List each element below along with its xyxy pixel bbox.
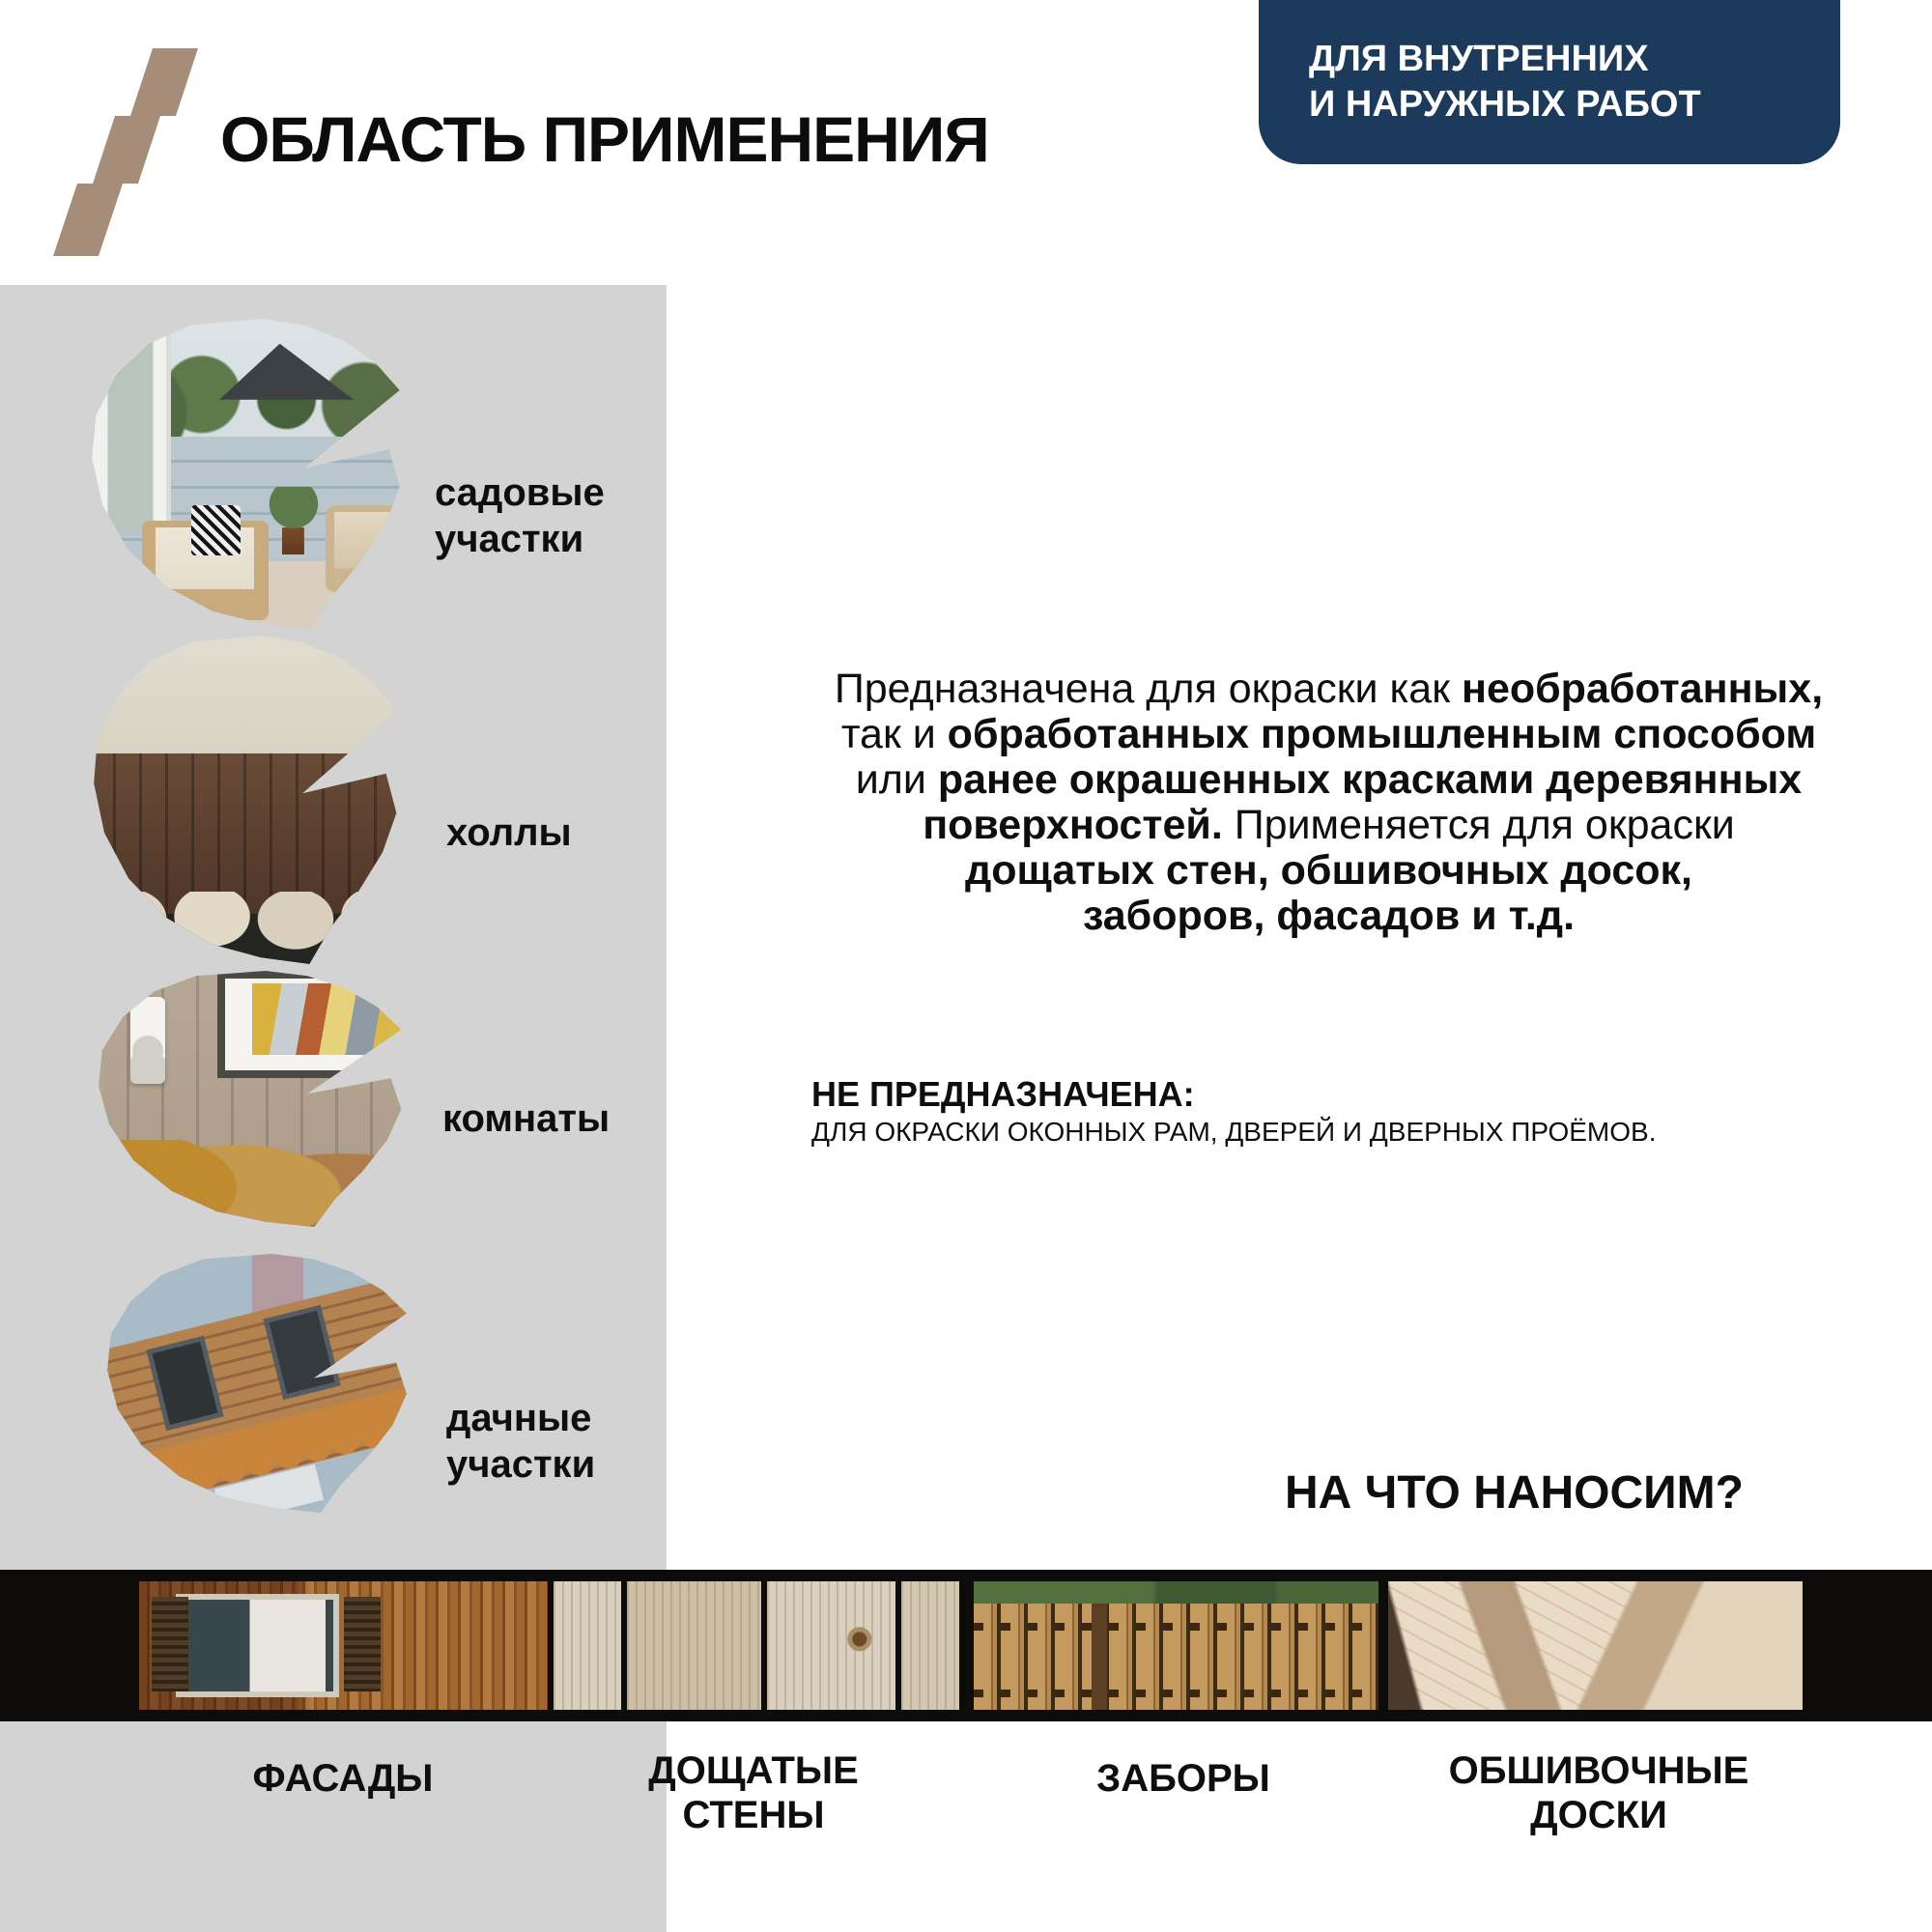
- lightning-bolt-icon: [14, 0, 208, 261]
- photo-layer: [176, 1594, 339, 1696]
- not-intended-title: НЕ ПРЕДНАЗНАЧЕНА:: [811, 1074, 1195, 1115]
- label-line: СТЕНЫ: [551, 1793, 956, 1837]
- photo-layer: [767, 1581, 895, 1710]
- application-label: холлы: [446, 810, 572, 856]
- surfaces-photo-strip: [0, 1570, 1932, 1721]
- intro-paragraph: Предназначена для окраски как необработа…: [800, 667, 1858, 939]
- photo-layer: [269, 487, 318, 555]
- badge-line: И НАРУЖНЫХ РАБОТ: [1309, 82, 1840, 128]
- surface-label: ФАСАДЫ: [140, 1756, 546, 1801]
- surface-label: ЗАБОРЫ: [980, 1756, 1386, 1801]
- label-line: ФАСАДЫ: [140, 1756, 546, 1801]
- label-line: ЗАБОРЫ: [980, 1756, 1386, 1801]
- application-label: дачные участки: [446, 1395, 595, 1488]
- facade-wood-wall-photo: [139, 1581, 548, 1710]
- surface-label: ДОЩАТЫЕ СТЕНЫ: [551, 1748, 956, 1837]
- page-title: ОБЛАСТЬ ПРИМЕНЕНИЯ: [220, 102, 989, 176]
- photo-layer: [152, 1597, 188, 1691]
- label-line: комнаты: [442, 1095, 610, 1142]
- plank-boards-photo: [554, 1581, 959, 1710]
- intro-line: заборов, фасадов и т.д.: [800, 894, 1858, 939]
- photo-layer: [627, 1581, 761, 1710]
- usage-badge: ДЛЯ ВНУТРЕННИХ И НАРУЖНЫХ РАБОТ: [1259, 0, 1840, 164]
- photo-layer: [974, 1690, 1378, 1697]
- surface-label: ОБШИВОЧНЫЕ ДОСКИ: [1396, 1748, 1802, 1837]
- intro-line: или ранее окрашенных красками деревянных: [800, 757, 1858, 803]
- wooden-fence-photo: [974, 1581, 1378, 1710]
- badge-line: ДЛЯ ВНУТРЕННИХ: [1309, 37, 1840, 82]
- label-line: садовые: [435, 469, 605, 516]
- intro-line: дощатых стен, обшивочных досок,: [800, 848, 1858, 894]
- not-intended-text: ДЛЯ ОКРАСКИ ОКОННЫХ РАМ, ДВЕРЕЙ И ДВЕРНЫ…: [811, 1117, 1656, 1148]
- photo-layer: [974, 1581, 1378, 1604]
- label-line: ДОЩАТЫЕ: [551, 1748, 956, 1793]
- intro-line: поверхностей. Применяется для окраски: [800, 803, 1858, 848]
- photo-layer: [344, 1597, 381, 1691]
- photo-layer: [191, 505, 241, 555]
- surfaces-heading: НА ЧТО НАНОСИМ?: [1285, 1466, 1744, 1520]
- label-line: ДОСКИ: [1396, 1793, 1802, 1837]
- photo-layer: [554, 1581, 621, 1710]
- application-label: садовые участки: [435, 469, 605, 562]
- label-line: дачные: [446, 1395, 595, 1441]
- label-line: ОБШИВОЧНЫЕ: [1396, 1748, 1802, 1793]
- photo-layer: [130, 997, 165, 1084]
- intro-line: так и обработанных промышленным способом: [800, 712, 1858, 757]
- photo-layer: [901, 1581, 959, 1710]
- cladding-boards-photo: [1388, 1581, 1803, 1710]
- label-line: участки: [446, 1441, 595, 1488]
- label-line: холлы: [446, 810, 572, 856]
- intro-line: Предназначена для окраски как необработа…: [800, 667, 1858, 712]
- label-line: участки: [435, 516, 605, 562]
- infographic-page: ОБЛАСТЬ ПРИМЕНЕНИЯ ДЛЯ ВНУТРЕННИХ И НАРУ…: [0, 0, 1932, 1932]
- photo-layer: [974, 1623, 1378, 1631]
- application-label: комнаты: [442, 1095, 610, 1142]
